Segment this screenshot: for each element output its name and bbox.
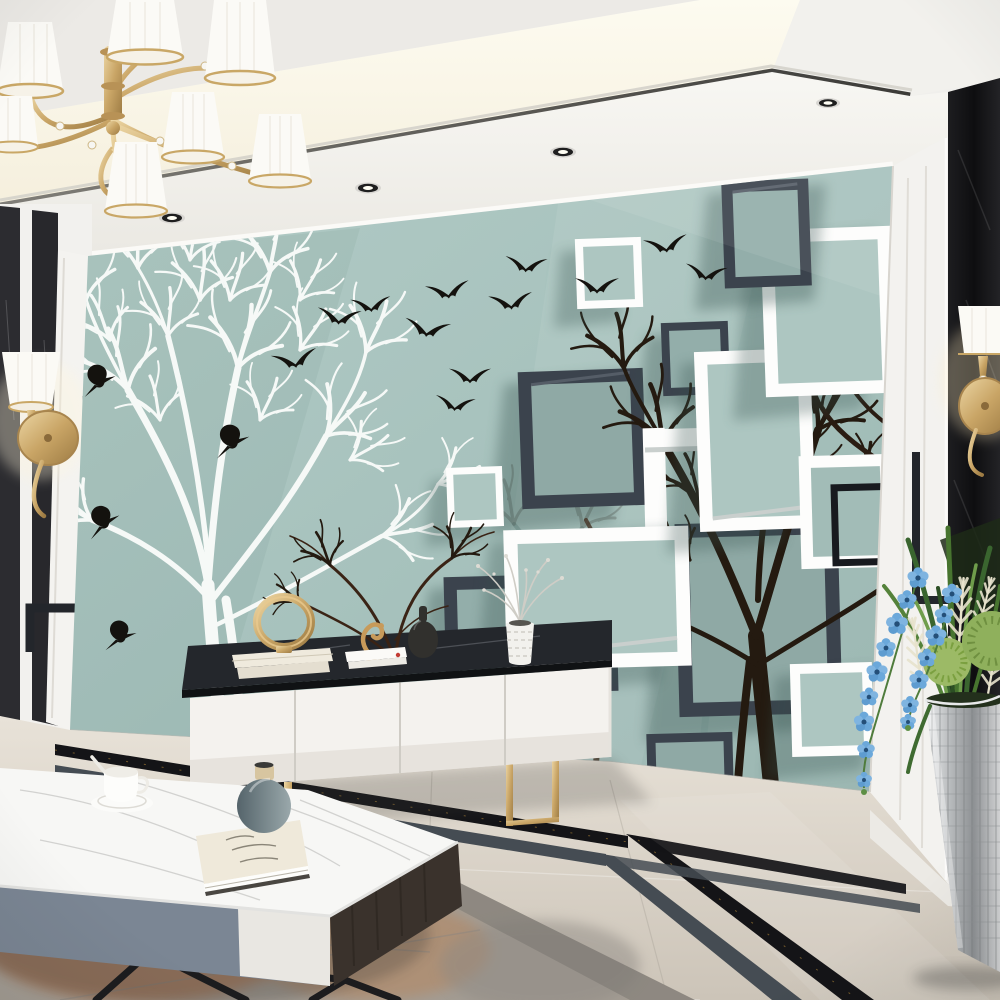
vignette [0,0,1000,1000]
scene-canvas [0,0,1000,1000]
living-room-photo [0,0,1000,1000]
